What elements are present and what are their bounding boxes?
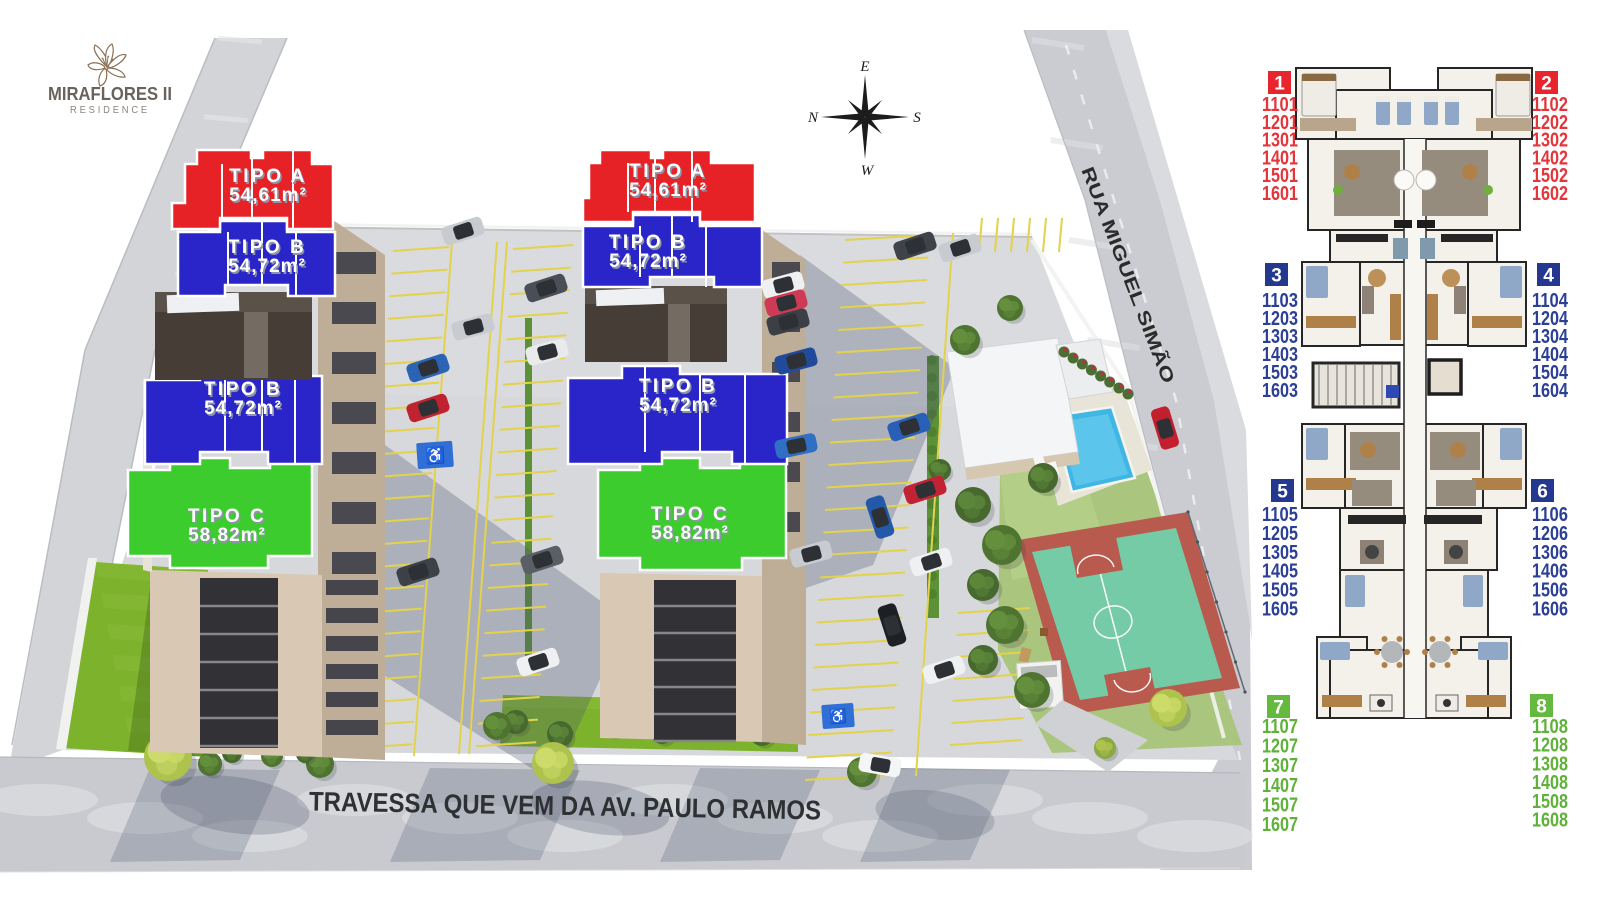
svg-text:1605: 1605 (1262, 599, 1298, 621)
svg-text:♿: ♿ (424, 445, 445, 465)
svg-text:58,82m²: 58,82m² (188, 525, 266, 546)
svg-text:S: S (913, 110, 921, 126)
svg-text:1601: 1601 (1262, 183, 1298, 205)
svg-text:TIPO B: TIPO B (204, 379, 282, 400)
svg-text:54,72m²: 54,72m² (609, 251, 687, 272)
svg-text:N: N (807, 110, 819, 126)
svg-text:1603: 1603 (1262, 380, 1298, 402)
svg-text:3: 3 (1271, 266, 1282, 287)
svg-text:W: W (861, 163, 875, 179)
svg-text:1602: 1602 (1532, 183, 1568, 205)
svg-text:1607: 1607 (1262, 814, 1298, 836)
svg-text:MIRAFLORES II: MIRAFLORES II (48, 84, 172, 104)
svg-text:2: 2 (1541, 74, 1552, 95)
svg-text:E: E (859, 59, 869, 75)
svg-text:6: 6 (1537, 482, 1548, 503)
svg-text:54,72m²: 54,72m² (204, 398, 282, 419)
svg-text:58,82m²: 58,82m² (651, 523, 729, 544)
svg-text:1: 1 (1274, 74, 1285, 95)
svg-text:1608: 1608 (1532, 810, 1568, 832)
svg-text:54,61m²: 54,61m² (629, 180, 707, 201)
svg-text:4: 4 (1543, 266, 1554, 287)
svg-text:TIPO C: TIPO C (188, 506, 266, 527)
svg-text:♿: ♿ (829, 707, 848, 725)
svg-text:TIPO C: TIPO C (651, 504, 729, 525)
svg-text:1606: 1606 (1532, 599, 1568, 621)
svg-text:TIPO B: TIPO B (228, 237, 306, 258)
svg-text:TIPO B: TIPO B (609, 232, 687, 253)
svg-text:54,61m²: 54,61m² (229, 185, 307, 206)
svg-text:54,72m²: 54,72m² (639, 395, 717, 416)
svg-text:TIPO B: TIPO B (639, 376, 717, 397)
svg-text:RESIDENCE: RESIDENCE (70, 105, 150, 116)
svg-text:54,72m²: 54,72m² (228, 256, 306, 277)
svg-text:TIPO A: TIPO A (229, 166, 307, 187)
svg-text:5: 5 (1277, 482, 1288, 503)
svg-text:TIPO A: TIPO A (629, 161, 707, 182)
svg-text:1604: 1604 (1532, 380, 1569, 402)
svg-text:8: 8 (1536, 697, 1547, 718)
